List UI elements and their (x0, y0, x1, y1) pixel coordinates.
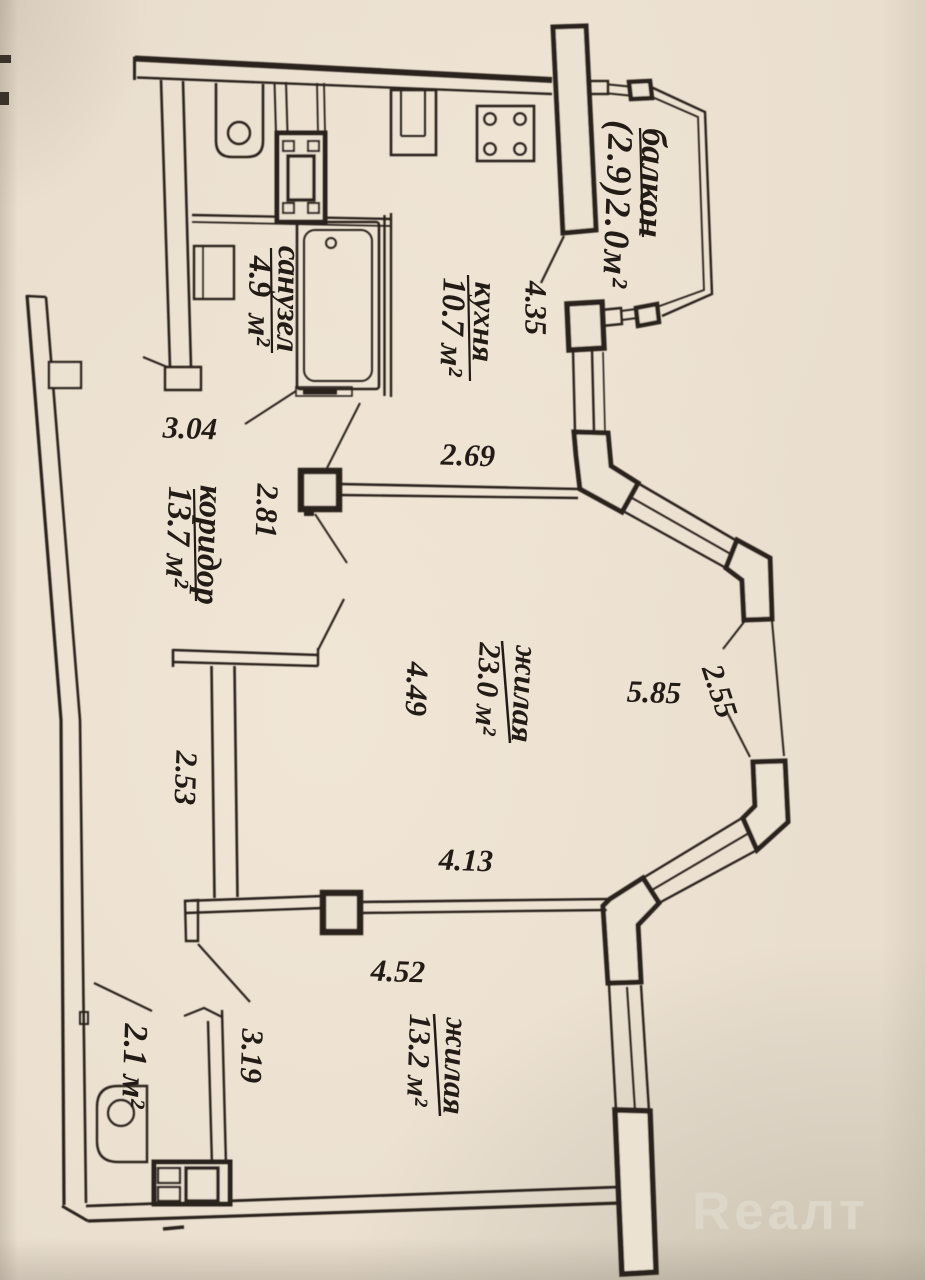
svg-text:2.81: 2.81 (249, 482, 286, 538)
svg-text:2.53: 2.53 (168, 749, 205, 805)
svg-text:3.19: 3.19 (234, 1027, 271, 1083)
svg-text:4.52: 4.52 (369, 953, 425, 990)
svg-text:10.7 м²: 10.7 м² (432, 277, 471, 378)
svg-text:23.0 м²: 23.0 м² (468, 641, 508, 737)
svg-text:3.04: 3.04 (161, 410, 217, 447)
svg-text:4.49: 4.49 (399, 660, 436, 716)
svg-text:жилая: жилая (436, 1016, 475, 1115)
svg-text:13.2 м²: 13.2 м² (400, 1013, 438, 1107)
svg-text:жилая: жилая (504, 644, 545, 744)
svg-text:5.85: 5.85 (626, 674, 681, 711)
svg-text:2.1 м²: 2.1 м² (114, 1022, 154, 1110)
svg-text:13.7 м²: 13.7 м² (158, 486, 199, 590)
svg-text:4.13: 4.13 (437, 842, 493, 879)
svg-text:(2.9)2.0м²: (2.9)2.0м² (595, 120, 641, 291)
svg-text:2.69: 2.69 (439, 437, 495, 474)
svg-text:Reaлт: Reaлт (692, 1182, 869, 1241)
svg-text:4.35: 4.35 (519, 280, 554, 335)
svg-text:4.9 м²: 4.9 м² (240, 255, 278, 348)
